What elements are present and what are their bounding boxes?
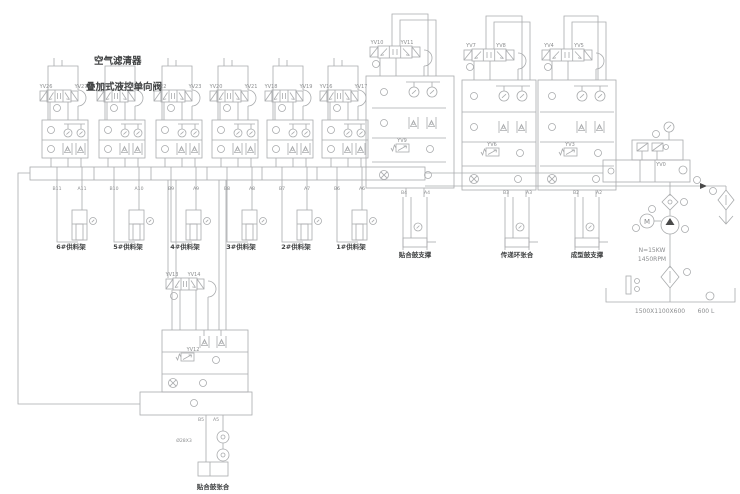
power-unit [603,122,735,302]
yv-label: YV0 [655,162,666,168]
supply-station-labels: YV26 YV27 B11 A11 6#供料架 YV24 YV25 B10 A1… [39,84,368,251]
schematic-canvas: YV26 YV27 B11 A11 6#供料架 YV24 YV25 B10 A1… [0,0,740,494]
unloading-valve-block [632,140,683,160]
cylinder-label: 1#供料架 [336,242,366,251]
pump-icon [649,206,689,235]
yv-label: YV14 [187,272,201,278]
yv-label: YV26 [39,84,53,90]
yv-label: YV3 [564,142,575,148]
yv-label: YV10 [370,40,384,46]
cylinder-label: 传递环张合 [500,250,534,259]
yv-label: YV16 [319,84,333,90]
port-label: B6 [334,186,340,192]
port-label: A5 [213,417,219,423]
port-label: B9 [168,186,174,192]
yv-label: YV23 [188,84,202,90]
yv-label: YV12 [186,347,200,353]
oil-tank [606,276,735,302]
trunk-lines [18,173,700,404]
port-label: B7 [279,186,285,192]
port-label: A11 [78,186,87,192]
cylinder-label: 6#供料架 [56,242,86,251]
yv-label: YV7 [465,43,476,49]
cylinder-label: 成型鼓支撑 [571,250,604,259]
yv-label: YV18 [264,84,278,90]
port-label: B5 [198,417,204,423]
yv-label: YV5 [573,43,584,49]
main-station-laminating-support [366,14,454,250]
tank-dimensions-label: 1500X1100X600 [635,308,685,315]
yv-label: YV13 [165,272,179,278]
yv-label: YV17 [354,84,368,90]
motor-power-label: N=15KW [639,247,666,254]
cylinder-label: 3#供料架 [226,242,256,251]
pressure-gauge-icon [653,122,675,140]
port-label: A2 [596,190,602,196]
port-label: A7 [304,186,310,192]
yv-label: YV21 [244,84,258,90]
yv-label: YV19 [299,84,313,90]
port-label: A3 [526,190,532,196]
main-station-transfer-ring [462,16,538,250]
port-label: A6 [359,186,365,192]
motor-letter: M [644,218,650,226]
hydraulic-schematic: YV26 YV27 B11 A11 6#供料架 YV24 YV25 B10 A1… [0,0,740,494]
cylinder-label: 2#供料架 [281,242,311,251]
cylinder-label: 贴合鼓张合 [197,482,230,491]
yv-label: YV20 [209,84,223,90]
cylinder-label: 5#供料架 [113,242,143,251]
return-filter-icon [694,177,735,225]
port-label: A4 [424,190,430,196]
main-station-forming-drum [538,16,616,250]
pipe-size-label: Ø28X3 [176,437,192,444]
yv-label: YV6 [486,142,497,148]
cylinder-label: 4#供料架 [170,242,200,251]
port-label: A9 [193,186,199,192]
cylinder-label: 贴合鼓支撑 [399,250,432,259]
tank-volume-label: 600 L [698,308,715,315]
port-label: B11 [53,186,62,192]
port-label: B3 [503,190,509,196]
yv-label: YV4 [543,43,554,49]
motor-speed-label: 1450RPM [638,256,666,263]
yv-label: YV8 [495,43,506,49]
suction-filter-icon [661,234,691,302]
port-label: B2 [573,190,579,196]
yv-label: YV9 [396,138,407,144]
port-label: A10 [135,186,144,192]
title-stacked-check-valve: 叠加式液控单向阀 [86,81,162,93]
port-label: B4 [401,190,407,196]
title-air-filter: 空气滤清器 [94,55,142,67]
port-label: B10 [110,186,119,192]
port-label: B8 [224,186,230,192]
port-label: A8 [249,186,255,192]
yv-label: YV11 [400,40,414,46]
